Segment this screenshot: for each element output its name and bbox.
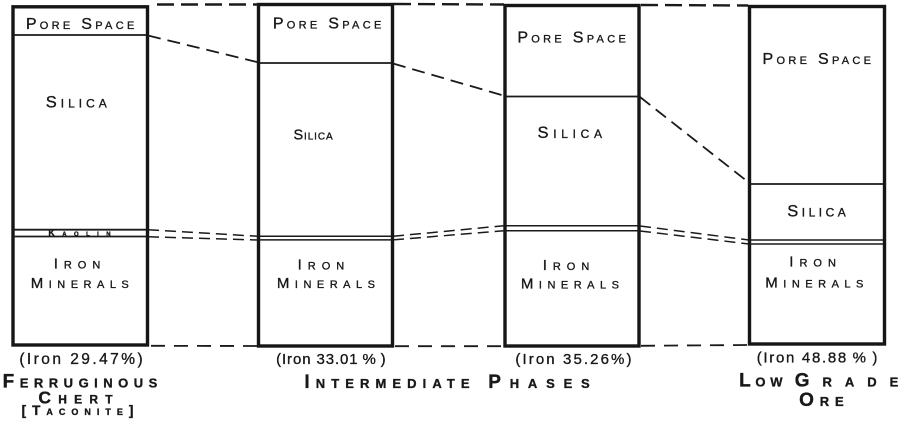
svg-text:Pore Space: Pore Space — [273, 16, 385, 33]
svg-text:Silica: Silica — [537, 124, 606, 142]
svg-text:Minerals: Minerals — [277, 275, 381, 292]
svg-text:(Iron 48.88 % ): (Iron 48.88 % ) — [757, 350, 879, 367]
svg-text:Ore: Ore — [799, 390, 849, 411]
svg-text:Minerals: Minerals — [765, 275, 869, 292]
svg-text:[Taconite]: [Taconite] — [22, 403, 140, 418]
svg-text:Iron: Iron — [54, 256, 107, 273]
svg-text:Iron: Iron — [298, 257, 351, 274]
svg-text:(Iron 35.26%): (Iron 35.26%) — [515, 351, 633, 368]
svg-text:Silica: Silica — [46, 94, 111, 112]
svg-text:(Iron 29.47%): (Iron 29.47%) — [19, 351, 145, 368]
svg-text:Low: Low — [739, 371, 787, 392]
svg-text:Minerals: Minerals — [31, 275, 135, 292]
svg-text:(Iron 33.01 % ): (Iron 33.01 % ) — [276, 351, 386, 368]
svg-text:Grade: Grade — [795, 371, 900, 392]
svg-text:Iron: Iron — [543, 257, 596, 274]
svg-text:Silica: Silica — [787, 202, 849, 220]
svg-text:Kaolin: Kaolin — [48, 228, 118, 238]
svg-text:Iron: Iron — [789, 254, 842, 271]
svg-text:Intermediate: Intermediate — [304, 372, 475, 393]
svg-text:Pore Space: Pore Space — [763, 51, 875, 68]
svg-text:Pore Space: Pore Space — [517, 30, 629, 47]
svg-text:Phases: Phases — [488, 372, 598, 393]
svg-text:Pore Space: Pore Space — [26, 16, 138, 33]
svg-text:Minerals: Minerals — [521, 276, 625, 293]
svg-text:Silica: Silica — [293, 128, 333, 144]
